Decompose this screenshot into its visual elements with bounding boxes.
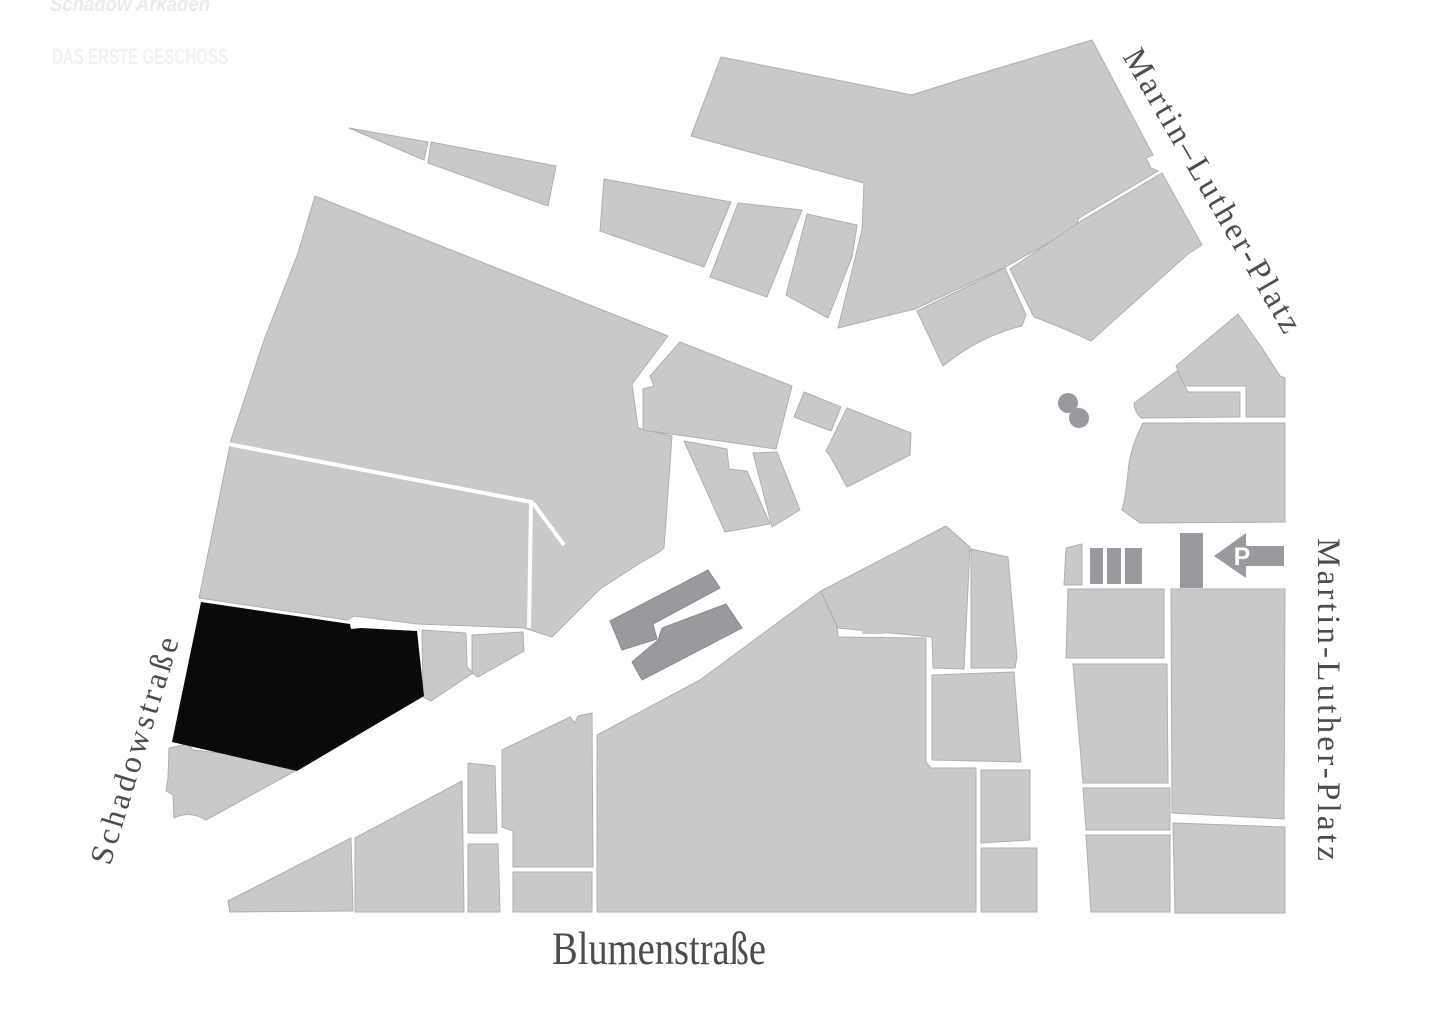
svg-text:P: P — [1234, 543, 1251, 571]
svg-text:DAS ERSTE GESCHOSS: DAS ERSTE GESCHOSS — [52, 44, 228, 69]
svg-text:Martin-Luther-Platz: Martin-Luther-Platz — [1310, 538, 1346, 864]
svg-text:Schadow Arkaden: Schadow Arkaden — [50, 0, 210, 16]
svg-text:Blumenstraße: Blumenstraße — [552, 923, 766, 975]
